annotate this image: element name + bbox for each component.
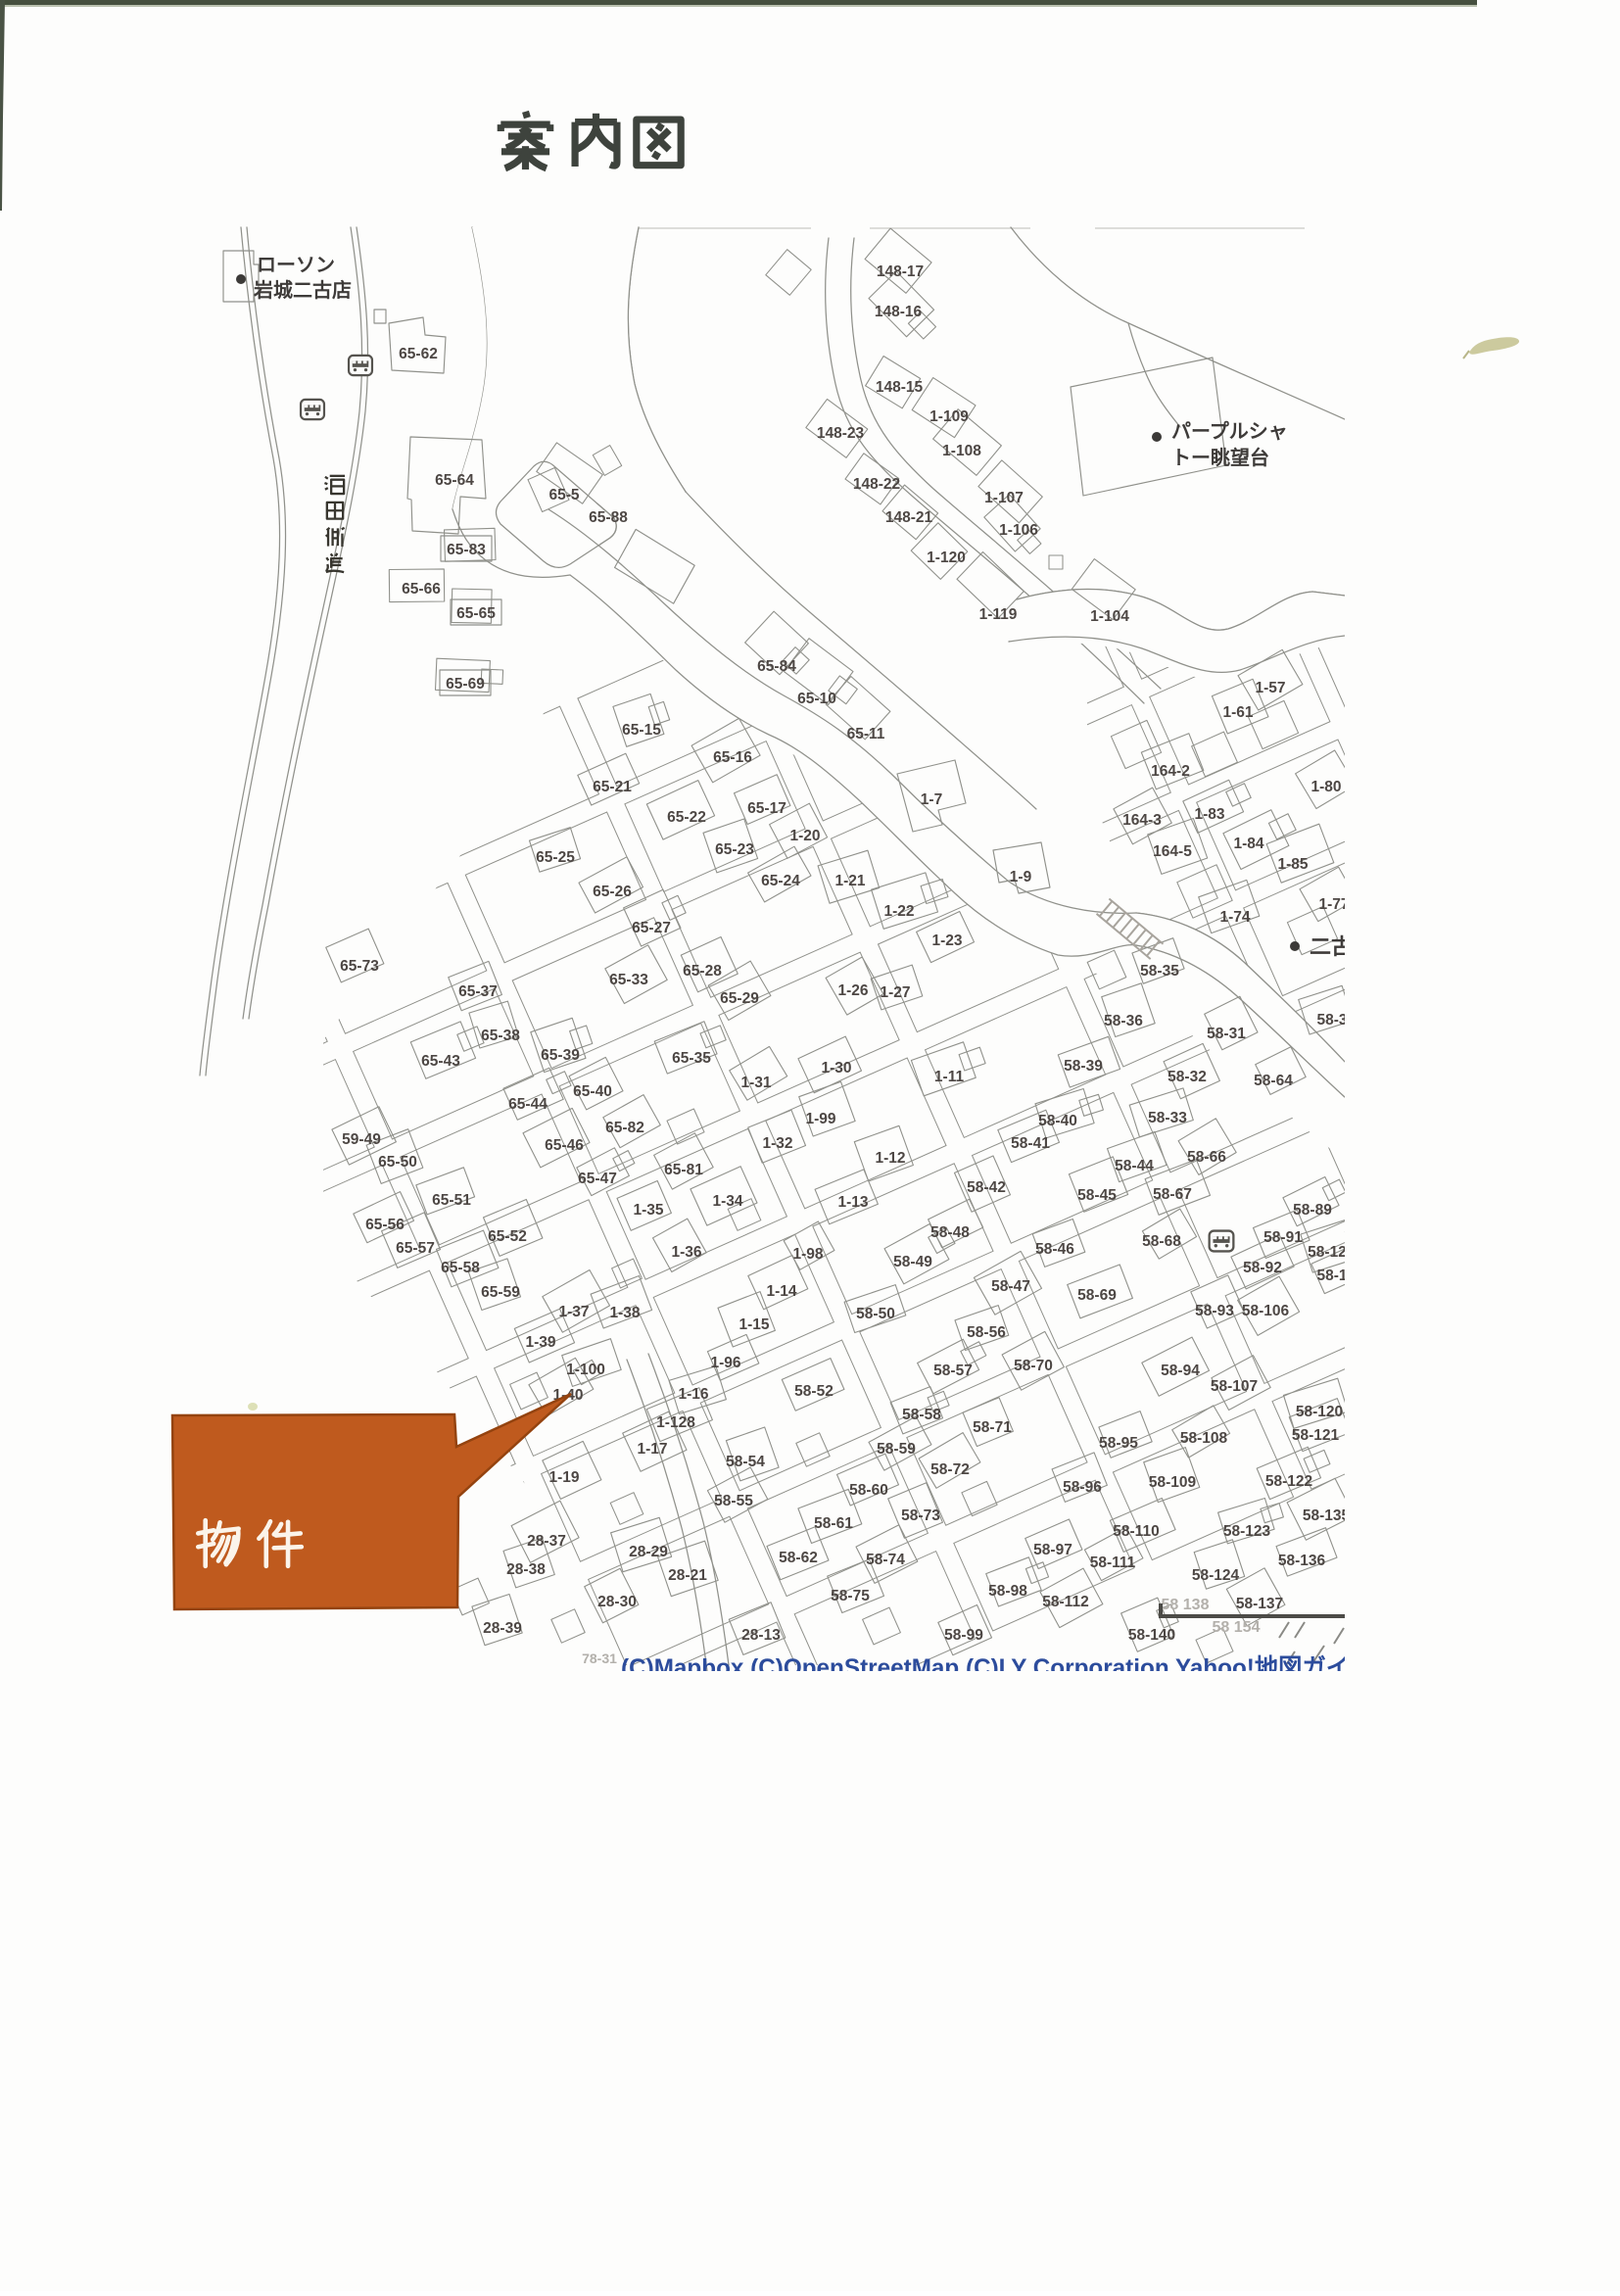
svg-text:58-40: 58-40	[1038, 1113, 1077, 1129]
svg-text:1-27: 1-27	[880, 984, 910, 1001]
svg-text:1-12: 1-12	[875, 1150, 905, 1167]
svg-text:1-83: 1-83	[1194, 806, 1224, 823]
svg-text:58-96: 58-96	[1063, 1479, 1102, 1496]
svg-text:58-48: 58-48	[930, 1224, 970, 1241]
svg-text:65-50: 65-50	[378, 1154, 417, 1171]
svg-text:58-56: 58-56	[967, 1324, 1006, 1341]
svg-text:1-120: 1-120	[927, 550, 966, 566]
svg-text:58-124: 58-124	[1192, 1567, 1240, 1584]
svg-text:58-58: 58-58	[902, 1407, 941, 1423]
svg-text:28-21: 28-21	[668, 1567, 707, 1584]
svg-text:65-24: 65-24	[761, 873, 800, 889]
svg-text:148-22: 148-22	[853, 476, 900, 493]
svg-text:1-99: 1-99	[805, 1111, 835, 1127]
svg-text:65-35: 65-35	[672, 1050, 711, 1067]
svg-text:58-31: 58-31	[1207, 1026, 1246, 1042]
svg-text:65-51: 65-51	[432, 1192, 471, 1209]
svg-text:65-44: 65-44	[508, 1096, 548, 1113]
svg-text:1-30: 1-30	[821, 1060, 851, 1076]
svg-text:58-44: 58-44	[1115, 1158, 1154, 1174]
svg-text:28-39: 28-39	[483, 1620, 522, 1637]
svg-text:58-112: 58-112	[1042, 1594, 1088, 1610]
svg-text:65-17: 65-17	[747, 800, 786, 817]
svg-text:65-37: 65-37	[458, 983, 498, 1000]
svg-text:1-107: 1-107	[984, 490, 1024, 506]
svg-text:65-84: 65-84	[757, 658, 796, 675]
svg-text:65-29: 65-29	[720, 990, 759, 1007]
svg-text:1-32: 1-32	[762, 1135, 792, 1152]
svg-text:58-60: 58-60	[849, 1482, 888, 1499]
svg-text:1-119: 1-119	[979, 606, 1018, 623]
svg-text:1-57: 1-57	[1255, 680, 1285, 696]
svg-text:1-31: 1-31	[740, 1075, 771, 1091]
svg-text:58-121: 58-121	[1292, 1427, 1340, 1444]
svg-text:65-66: 65-66	[402, 581, 441, 598]
svg-text:58-39: 58-39	[1064, 1058, 1103, 1075]
svg-text:148-23: 148-23	[817, 425, 865, 442]
svg-text:28-13: 28-13	[741, 1627, 781, 1644]
svg-text:65-83: 65-83	[447, 542, 486, 558]
svg-text:58-57: 58-57	[933, 1363, 973, 1379]
svg-text:1-37: 1-37	[558, 1304, 589, 1320]
svg-text:58-74: 58-74	[866, 1552, 905, 1568]
svg-text:65-47: 65-47	[578, 1171, 617, 1187]
svg-text:65-56: 65-56	[365, 1217, 405, 1233]
svg-text:65-27: 65-27	[632, 920, 671, 936]
svg-text:58-89: 58-89	[1293, 1202, 1332, 1219]
svg-text:58-61: 58-61	[814, 1515, 853, 1532]
svg-text:28-38: 28-38	[506, 1561, 546, 1578]
svg-text:65-10: 65-10	[797, 691, 836, 707]
svg-text:65-23: 65-23	[715, 841, 754, 858]
svg-text:28-37: 28-37	[527, 1533, 566, 1550]
svg-text:1-77: 1-77	[1318, 896, 1349, 913]
svg-text:65-39: 65-39	[541, 1047, 580, 1064]
svg-text:58-110: 58-110	[1113, 1523, 1159, 1540]
svg-text:59-49: 59-49	[342, 1131, 381, 1148]
svg-text:58-3: 58-3	[1316, 1012, 1347, 1028]
svg-text:65-43: 65-43	[421, 1053, 460, 1070]
svg-text:1-98: 1-98	[792, 1246, 823, 1263]
svg-text:58-109: 58-109	[1149, 1474, 1197, 1491]
svg-text:148-17: 148-17	[877, 263, 924, 280]
svg-text:58-33: 58-33	[1148, 1110, 1187, 1126]
svg-text:58-45: 58-45	[1077, 1187, 1117, 1204]
svg-text:148-15: 148-15	[876, 379, 924, 396]
svg-text:1-7: 1-7	[921, 791, 942, 808]
svg-text:65-73: 65-73	[340, 958, 379, 975]
svg-text:58-137: 58-137	[1236, 1596, 1283, 1612]
svg-text:58-107: 58-107	[1211, 1378, 1258, 1395]
svg-text:65-65: 65-65	[456, 605, 496, 622]
svg-text:65-88: 65-88	[589, 509, 628, 526]
svg-text:1-128: 1-128	[656, 1414, 695, 1431]
svg-text:65-25: 65-25	[536, 849, 575, 866]
svg-text:1-38: 1-38	[609, 1305, 640, 1321]
svg-text:ローソン: ローソン	[257, 255, 335, 276]
svg-text:58-67: 58-67	[1153, 1186, 1192, 1203]
svg-text:58-93: 58-93	[1195, 1303, 1234, 1319]
svg-text:1-61: 1-61	[1222, 704, 1253, 721]
svg-text:65-5: 65-5	[548, 487, 579, 503]
svg-text:1-19: 1-19	[548, 1469, 579, 1486]
svg-text:58-97: 58-97	[1033, 1542, 1072, 1558]
svg-text:58-32: 58-32	[1167, 1069, 1207, 1085]
svg-text:58-106: 58-106	[1242, 1303, 1290, 1319]
svg-text:1-22: 1-22	[883, 903, 914, 920]
svg-text:58-1: 58-1	[1316, 1268, 1347, 1284]
svg-text:58-94: 58-94	[1161, 1363, 1200, 1379]
svg-text:1-80: 1-80	[1310, 779, 1341, 795]
svg-text:65-57: 65-57	[396, 1240, 435, 1257]
svg-text:58-108: 58-108	[1180, 1430, 1228, 1447]
svg-text:65-16: 65-16	[713, 749, 752, 766]
svg-text:58-91: 58-91	[1263, 1229, 1303, 1246]
svg-text:1-108: 1-108	[942, 443, 981, 459]
svg-text:78-31: 78-31	[582, 1650, 617, 1666]
svg-text:65-81: 65-81	[664, 1162, 703, 1178]
svg-text:1-13: 1-13	[837, 1194, 868, 1211]
svg-text:1-15: 1-15	[739, 1316, 769, 1333]
svg-text:58-68: 58-68	[1142, 1233, 1181, 1250]
svg-text:58-111: 58-111	[1090, 1555, 1136, 1571]
svg-text:1-20: 1-20	[789, 828, 820, 844]
svg-text:1-100: 1-100	[566, 1362, 605, 1378]
svg-text:28-29: 28-29	[629, 1544, 668, 1560]
svg-text:65-40: 65-40	[573, 1083, 612, 1100]
svg-text:65-28: 65-28	[683, 963, 722, 980]
svg-text:65-26: 65-26	[593, 884, 632, 900]
svg-text:58-64: 58-64	[1254, 1073, 1293, 1089]
svg-text:58-59: 58-59	[877, 1441, 916, 1458]
svg-text:58-72: 58-72	[930, 1461, 970, 1478]
svg-text:1-34: 1-34	[712, 1193, 742, 1210]
svg-text:1-21: 1-21	[834, 873, 865, 889]
svg-text:岩城二古店: 岩城二古店	[253, 278, 352, 302]
svg-text:パープルシャ: パープルシャ	[1171, 420, 1288, 443]
svg-text:58-123: 58-123	[1223, 1523, 1271, 1540]
svg-text:58-41: 58-41	[1011, 1135, 1050, 1152]
svg-text:65-22: 65-22	[667, 809, 706, 826]
svg-text:1-23: 1-23	[931, 933, 962, 949]
svg-text:58-69: 58-69	[1077, 1287, 1117, 1304]
svg-text:65-21: 65-21	[593, 779, 632, 795]
svg-text:1-85: 1-85	[1277, 856, 1308, 873]
svg-text:65-11: 65-11	[847, 726, 885, 742]
svg-text:1-106: 1-106	[999, 522, 1038, 539]
svg-text:65-46: 65-46	[545, 1137, 584, 1154]
svg-text:65-59: 65-59	[481, 1284, 520, 1301]
svg-text:1-96: 1-96	[710, 1355, 740, 1371]
svg-text:58-35: 58-35	[1140, 963, 1179, 980]
svg-text:65-62: 65-62	[399, 346, 438, 362]
svg-text:1-17: 1-17	[637, 1441, 667, 1458]
svg-text:58-55: 58-55	[714, 1493, 753, 1509]
svg-text:65-82: 65-82	[605, 1120, 644, 1136]
svg-text:1-104: 1-104	[1090, 608, 1129, 625]
svg-text:58-95: 58-95	[1099, 1435, 1138, 1452]
svg-text:58-75: 58-75	[831, 1588, 870, 1604]
svg-text:65-33: 65-33	[609, 972, 648, 988]
svg-text:58-98: 58-98	[988, 1583, 1027, 1600]
svg-text:28-30: 28-30	[597, 1594, 637, 1610]
svg-text:58-135: 58-135	[1303, 1507, 1351, 1524]
svg-text:1-36: 1-36	[671, 1244, 701, 1261]
svg-text:58-140: 58-140	[1128, 1627, 1175, 1644]
svg-text:58-122: 58-122	[1265, 1473, 1312, 1490]
svg-text:1-74: 1-74	[1219, 909, 1250, 926]
svg-text:1-11: 1-11	[934, 1069, 965, 1085]
svg-text:1-39: 1-39	[525, 1334, 555, 1351]
svg-text:1-35: 1-35	[633, 1202, 663, 1219]
svg-text:1-84: 1-84	[1233, 836, 1263, 852]
svg-text:58-71: 58-71	[973, 1419, 1012, 1436]
svg-text:58 154: 58 154	[1213, 1619, 1261, 1636]
svg-text:65-64: 65-64	[435, 472, 474, 489]
svg-text:65-38: 65-38	[481, 1028, 520, 1044]
svg-text:58-62: 58-62	[779, 1550, 818, 1566]
svg-text:1-14: 1-14	[766, 1283, 796, 1300]
svg-text:148-16: 148-16	[875, 304, 923, 320]
svg-text:トー眺望台: トー眺望台	[1171, 446, 1269, 469]
svg-text:1-26: 1-26	[837, 982, 868, 999]
svg-text:65-58: 65-58	[441, 1260, 480, 1276]
svg-text:58-99: 58-99	[944, 1627, 983, 1644]
svg-text:164-2: 164-2	[1151, 763, 1190, 780]
svg-text:58-54: 58-54	[726, 1454, 765, 1470]
svg-text:58-136: 58-136	[1278, 1553, 1326, 1569]
svg-text:58-120: 58-120	[1296, 1404, 1343, 1420]
svg-text:58-42: 58-42	[967, 1179, 1006, 1196]
svg-text:65-52: 65-52	[488, 1228, 527, 1245]
svg-text:58-70: 58-70	[1014, 1358, 1053, 1374]
svg-text:1-109: 1-109	[929, 408, 969, 425]
svg-text:58-50: 58-50	[856, 1306, 895, 1322]
svg-text:58-66: 58-66	[1187, 1149, 1226, 1166]
svg-text:164-5: 164-5	[1153, 843, 1192, 860]
svg-text:58-52: 58-52	[794, 1383, 834, 1400]
svg-text:58-47: 58-47	[991, 1278, 1030, 1295]
svg-text:65-15: 65-15	[622, 722, 661, 739]
svg-text:1-16: 1-16	[678, 1386, 708, 1403]
svg-text:65-69: 65-69	[446, 676, 485, 693]
svg-text:58-36: 58-36	[1104, 1013, 1143, 1029]
svg-text:58 138: 58 138	[1162, 1597, 1210, 1613]
svg-text:58-49: 58-49	[893, 1254, 932, 1270]
svg-text:58-46: 58-46	[1035, 1241, 1074, 1258]
svg-text:58-73: 58-73	[901, 1507, 940, 1524]
svg-text:1-9: 1-9	[1010, 869, 1032, 885]
svg-text:58-92: 58-92	[1243, 1260, 1282, 1276]
svg-text:164-3: 164-3	[1122, 812, 1162, 829]
svg-text:58-12: 58-12	[1308, 1244, 1347, 1261]
svg-text:148-21: 148-21	[885, 509, 933, 526]
